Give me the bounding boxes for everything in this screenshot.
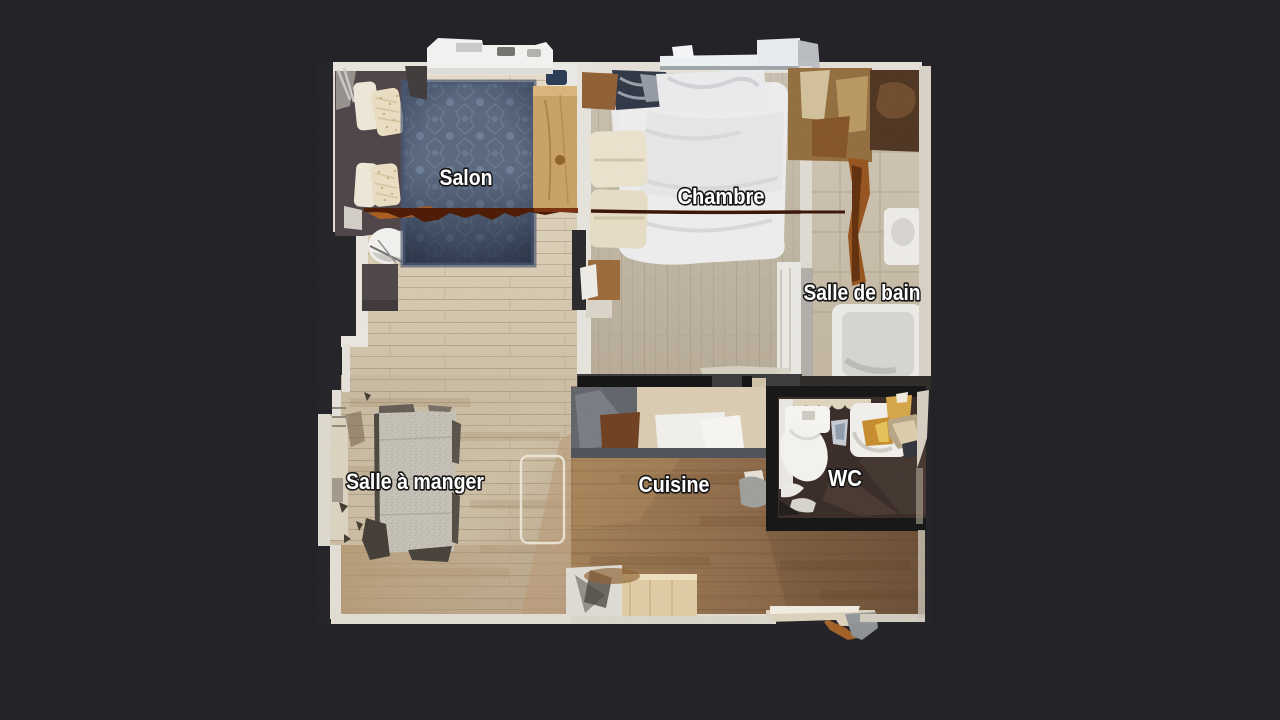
svg-text:Cuisine: Cuisine: [639, 472, 710, 497]
svg-text:Chambre: Chambre: [678, 184, 765, 209]
svg-text:WC: WC: [828, 465, 862, 491]
svg-text:Salle de bain: Salle de bain: [804, 280, 921, 305]
svg-text:Salon: Salon: [440, 165, 493, 190]
svg-text:Salle à manger: Salle à manger: [346, 469, 484, 494]
